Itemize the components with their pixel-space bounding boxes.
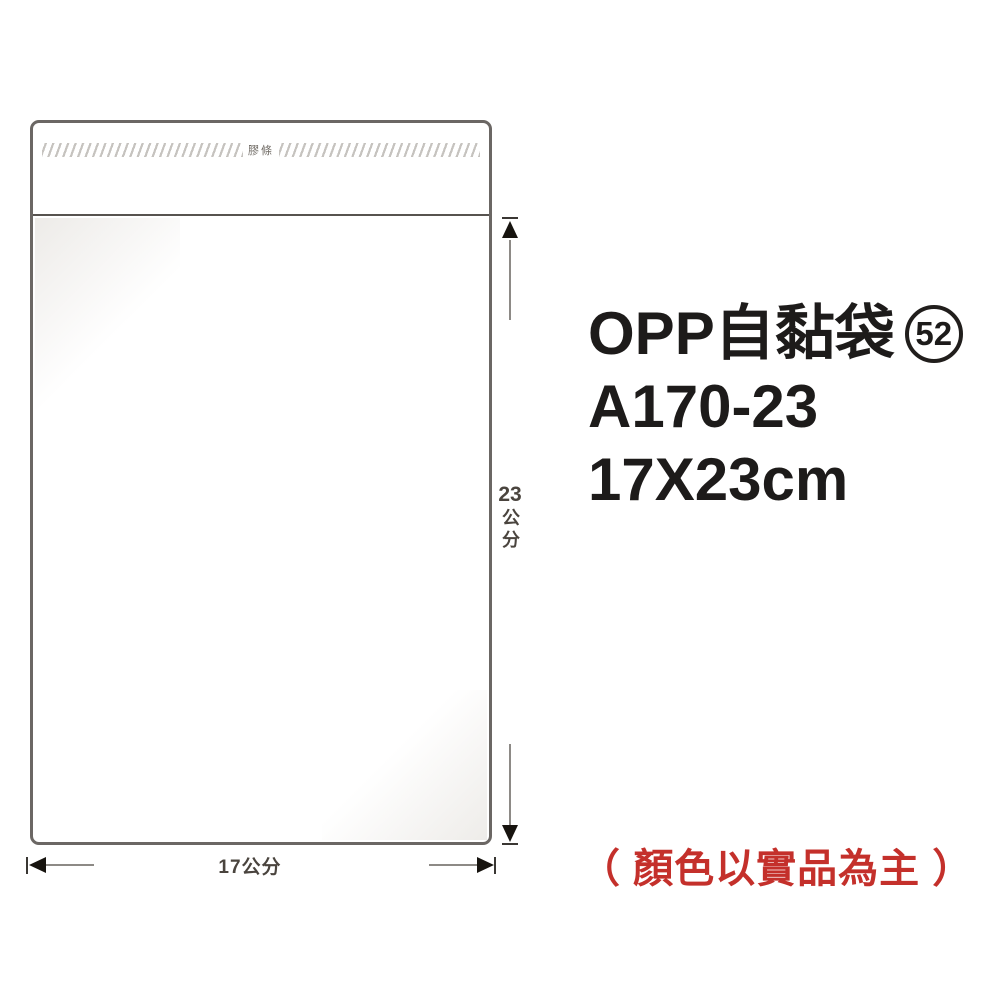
height-dim-top-tick	[502, 217, 518, 219]
height-dim-bottom-tick	[502, 843, 518, 845]
adhesive-strip: 膠條	[42, 141, 480, 158]
product-spec-image: 膠條 23 公分 17公分 OPP自黏袋 52 A170-23	[0, 0, 1000, 1000]
width-dim-left-arrow-icon	[29, 857, 46, 873]
width-dim-right-tick	[494, 857, 496, 874]
item-number-badge: 52	[905, 305, 963, 363]
product-title-row: OPP自黏袋 52	[588, 297, 963, 370]
height-value: 23	[498, 484, 521, 505]
adhesive-hatch-right	[279, 143, 480, 157]
width-dim-right-arrow-icon	[477, 857, 494, 873]
height-dim-lower-line	[509, 744, 511, 825]
adhesive-strip-label: 膠條	[243, 142, 279, 158]
adhesive-hatch-left	[42, 143, 243, 157]
bag-gloss-highlight-top-left	[35, 218, 180, 413]
width-dim-left-line	[46, 864, 94, 866]
height-unit: 公分	[501, 508, 519, 552]
width-dim-left-tick	[26, 857, 28, 874]
height-dim-upper-line	[509, 240, 511, 320]
bag-gloss-highlight-bottom-right	[322, 690, 487, 840]
height-dim-down-arrow-icon	[502, 825, 518, 842]
height-dim-up-arrow-icon	[502, 221, 518, 238]
product-model: A170-23	[588, 370, 963, 443]
flap-seam-line	[33, 214, 489, 216]
width-dim-right-line	[429, 864, 477, 866]
color-disclaimer-note: （ 顏色以實品為主 ）	[580, 836, 973, 894]
product-size: 17X23cm	[588, 443, 963, 516]
product-info: OPP自黏袋 52 A170-23 17X23cm	[588, 297, 963, 516]
bag-diagram: 膠條	[30, 120, 492, 845]
height-dim-label: 23 公分	[494, 484, 526, 552]
width-dim-label: 17公分	[175, 852, 325, 879]
product-name: OPP自黏袋	[588, 297, 895, 370]
